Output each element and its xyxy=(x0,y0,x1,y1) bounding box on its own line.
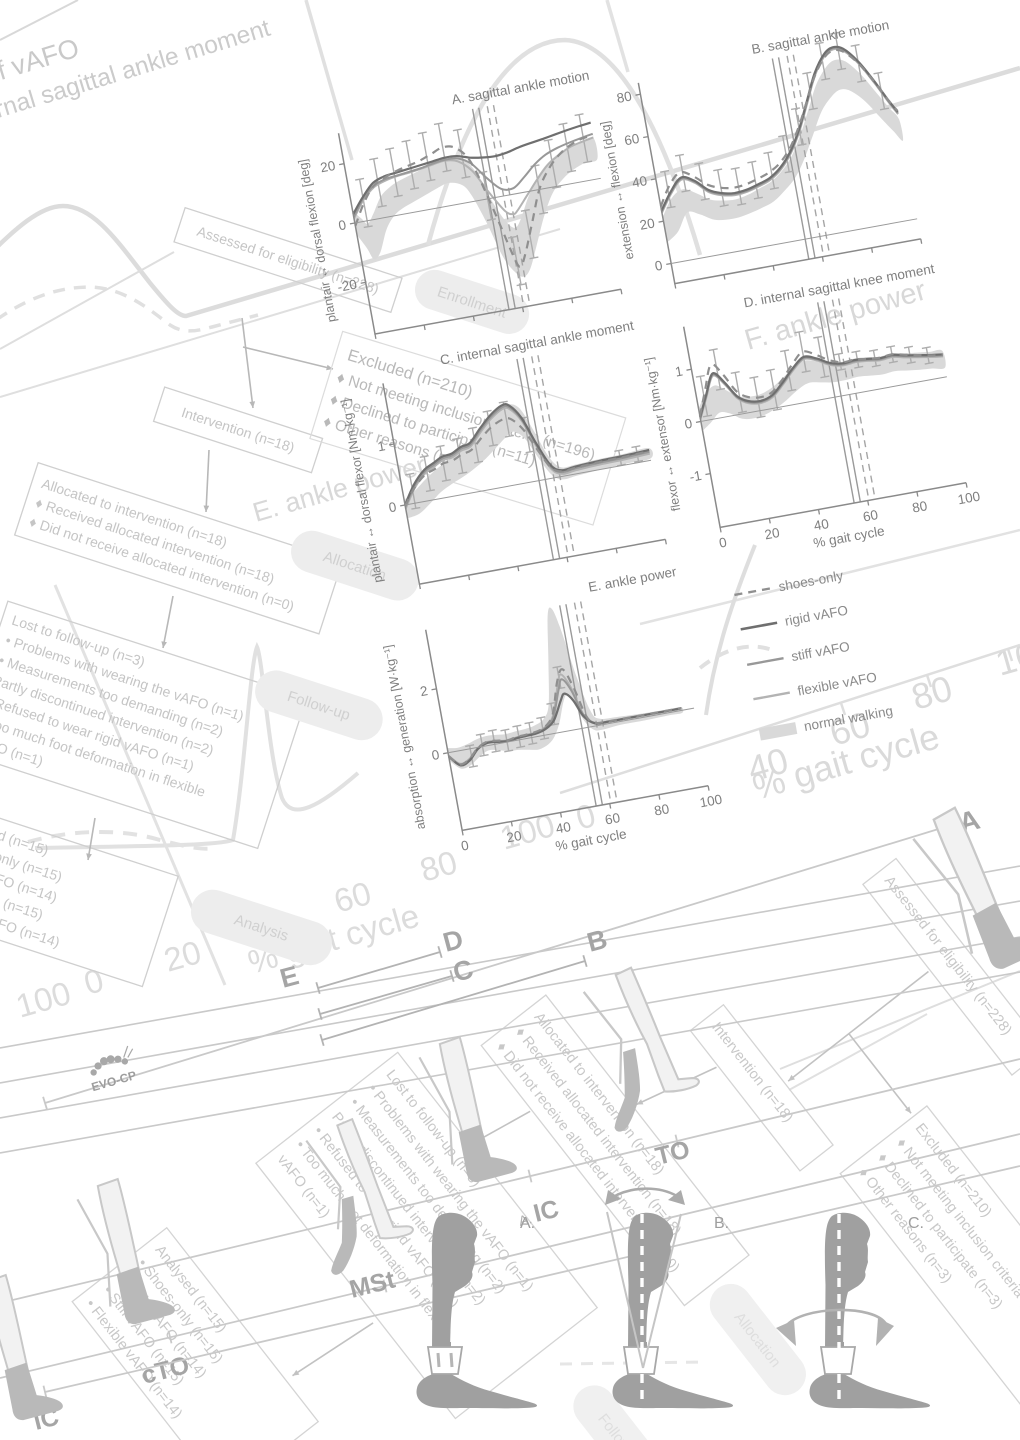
svg-text:EVO-CP: EVO-CP xyxy=(90,1068,138,1094)
svg-text:rigid vAFO: rigid vAFO xyxy=(784,603,849,629)
svg-text:IC: IC xyxy=(531,1195,562,1228)
svg-text:C: C xyxy=(450,954,477,988)
svg-text:100: 100 xyxy=(956,489,981,508)
svg-text:-1: -1 xyxy=(688,468,703,485)
svg-text:0: 0 xyxy=(683,416,693,432)
svg-text:-20: -20 xyxy=(336,277,358,295)
svg-text:D: D xyxy=(440,924,467,958)
svg-text:60: 60 xyxy=(623,131,640,148)
svg-text:10: 10 xyxy=(991,633,1020,683)
svg-text:E. ankle power: E. ankle power xyxy=(587,564,678,595)
svg-text:stiff vAFO: stiff vAFO xyxy=(790,639,851,664)
svg-text:80: 80 xyxy=(615,89,632,106)
svg-text:0: 0 xyxy=(430,747,440,763)
svg-text:plantair ↔ dorsal flexion [deg: plantair ↔ dorsal flexion [deg] xyxy=(296,158,339,323)
svg-text:20: 20 xyxy=(505,828,522,845)
svg-text:40: 40 xyxy=(555,819,572,836)
svg-text:0: 0 xyxy=(718,535,728,551)
svg-text:20: 20 xyxy=(763,525,780,542)
svg-text:100: 100 xyxy=(698,792,723,811)
svg-text:cTO: cTO xyxy=(139,1351,193,1390)
svg-text:C. internal sagittal ankle mom: C. internal sagittal ankle moment xyxy=(439,318,635,368)
svg-text:80: 80 xyxy=(911,498,928,515)
svg-text:60: 60 xyxy=(604,810,621,827)
svg-text:40: 40 xyxy=(813,516,830,533)
svg-text:0: 0 xyxy=(387,499,397,515)
svg-text:0: 0 xyxy=(337,217,347,233)
svg-text:40: 40 xyxy=(631,173,648,190)
svg-text:0: 0 xyxy=(460,838,470,854)
svg-text:80: 80 xyxy=(416,843,461,889)
svg-text:shoes-only: shoes-only xyxy=(777,568,844,594)
svg-text:80: 80 xyxy=(907,667,957,717)
svg-text:2: 2 xyxy=(419,683,429,699)
svg-text:1: 1 xyxy=(674,364,684,380)
svg-text:B.: B. xyxy=(714,1215,729,1232)
svg-text:20: 20 xyxy=(638,215,655,232)
svg-text:20: 20 xyxy=(319,158,336,175)
svg-text:B: B xyxy=(584,924,611,958)
svg-text:A.: A. xyxy=(520,1215,535,1232)
svg-text:Intervention (n=18): Intervention (n=18) xyxy=(180,404,297,456)
svg-text:flexor ↔ extensor [Nm·kg⁻¹]: flexor ↔ extensor [Nm·kg⁻¹] xyxy=(642,356,684,512)
svg-text:MSt: MSt xyxy=(347,1265,399,1303)
svg-text:60: 60 xyxy=(862,507,879,524)
svg-text:0: 0 xyxy=(654,258,664,274)
svg-text:20: 20 xyxy=(160,933,205,979)
svg-text:80: 80 xyxy=(653,801,670,818)
svg-text:C.: C. xyxy=(908,1215,924,1232)
svg-text:TO: TO xyxy=(653,1135,693,1170)
svg-text:absorption ↔ generation [W·kg⁻: absorption ↔ generation [W·kg⁻¹] xyxy=(381,644,428,831)
svg-text:100: 100 xyxy=(12,974,75,1025)
svg-text:A. sagittal ankle motion: A. sagittal ankle motion xyxy=(450,68,590,108)
